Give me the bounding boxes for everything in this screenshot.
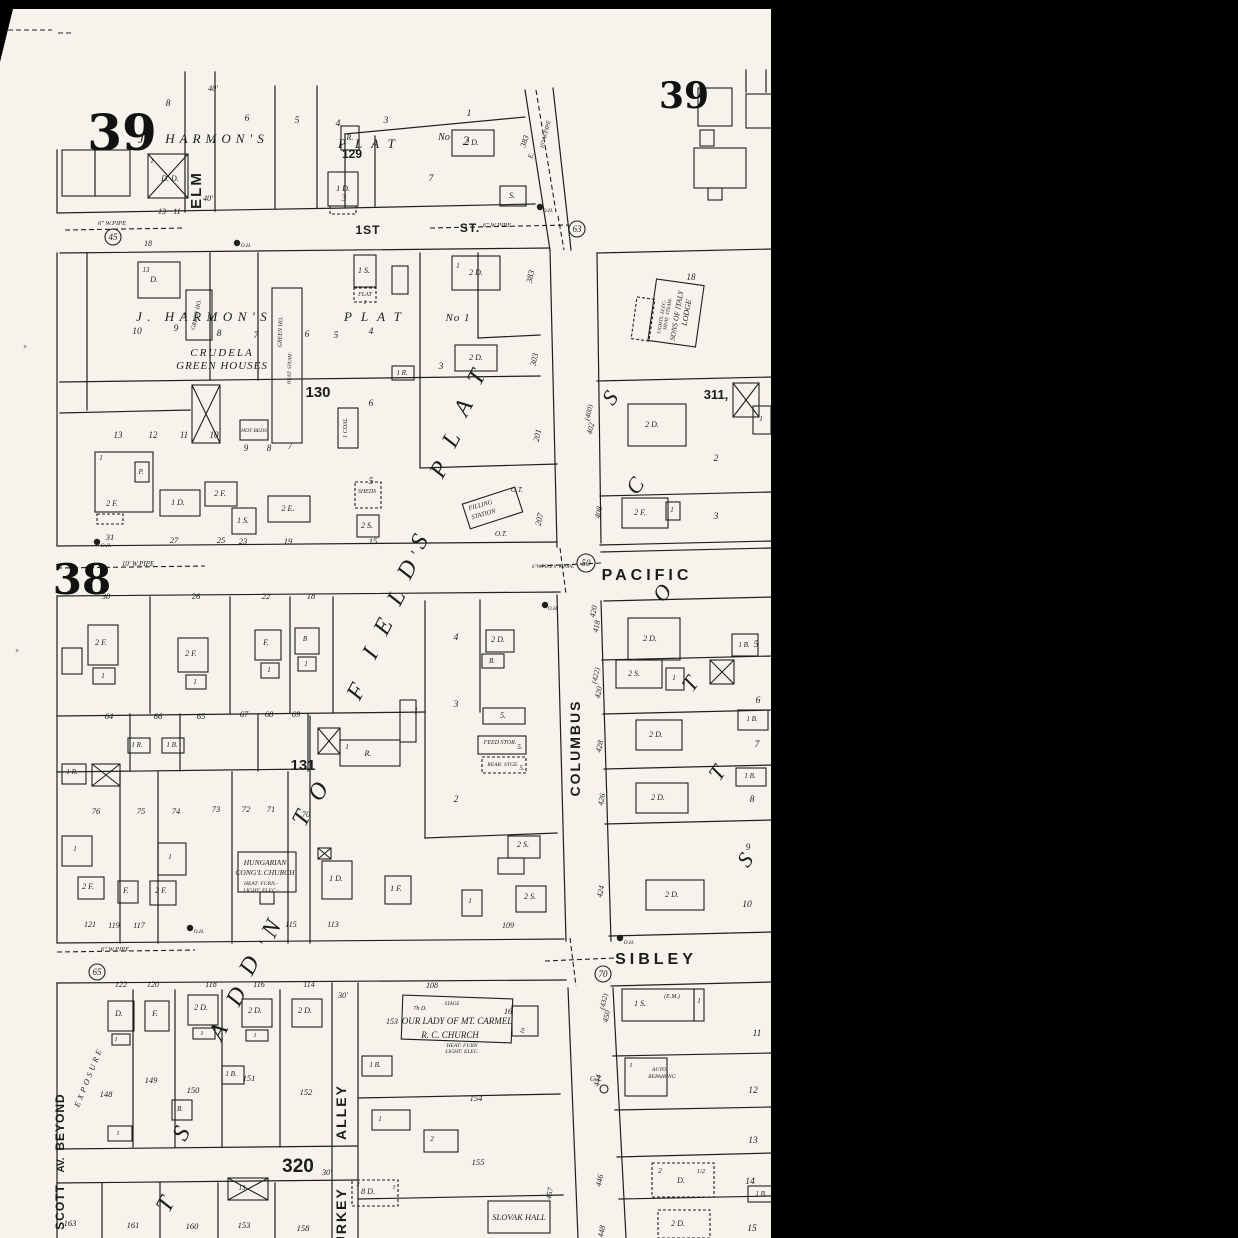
map-label: 2 D. — [645, 420, 659, 429]
map-label: LIGHT: ELEC.- — [242, 888, 279, 894]
map-label: 3 — [341, 194, 347, 204]
map-label: 1 D. — [329, 874, 343, 883]
map-label: 76 — [92, 806, 101, 816]
map-label: 2 S. — [628, 669, 640, 678]
black-strip-top — [0, 0, 1238, 9]
map-label: CRUDELA — [190, 347, 254, 359]
map-label: 2 F. — [82, 882, 94, 891]
map-label: 1 — [456, 262, 460, 270]
utility-circle-number: 65 — [93, 967, 103, 977]
map-label: 11 — [180, 430, 188, 440]
map-label: 158 — [297, 1223, 311, 1233]
map-label: 13 — [158, 207, 166, 216]
map-label: 115 — [285, 920, 296, 929]
map-label: 2 D. — [298, 1006, 312, 1015]
map-label: 1 S. — [358, 266, 370, 275]
map-label: CONG'L CHURCH — [235, 868, 295, 877]
map-label: O.H. — [624, 940, 635, 946]
map-label: 67 — [240, 709, 249, 719]
map-label: 4 — [336, 119, 341, 129]
hydrant-dot — [94, 539, 100, 545]
sanborn-map-canvas: 4563506570393839ELM1STST.PACIFICCOLUMBUS… — [0, 0, 1238, 1238]
map-label: B. — [489, 657, 495, 665]
map-label: 114 — [303, 980, 314, 989]
map-label: 1 — [99, 454, 103, 462]
map-label: 119 — [108, 921, 119, 930]
hydrant-dot — [187, 925, 193, 931]
map-label: 13 — [143, 266, 151, 274]
map-label: ST. — [460, 221, 480, 235]
map-label: No 1 — [444, 312, 470, 324]
map-label: 30 — [101, 591, 111, 601]
map-label: 2 F. — [95, 638, 107, 647]
map-label: 2 F. — [106, 499, 118, 508]
map-label: 1 B. — [738, 641, 750, 649]
map-label: 14 — [745, 1177, 755, 1187]
map-label: 1ST — [355, 223, 380, 237]
map-label: 152 — [300, 1087, 314, 1097]
map-label: D. — [114, 1009, 123, 1018]
map-label: B — [303, 635, 308, 643]
map-label: OUR LADY OF MT. CARMEL — [402, 1016, 513, 1026]
map-label: 18 — [144, 239, 152, 248]
map-label: TURKEY — [333, 1187, 349, 1238]
utility-circle-number: 50 — [582, 558, 592, 568]
map-label: 2 E. — [282, 504, 295, 513]
map-label: 5. — [500, 711, 506, 720]
map-label: 6 — [305, 330, 310, 340]
map-label: D. D. — [160, 174, 179, 183]
map-label: 5. — [519, 764, 525, 772]
map-label: 26 — [192, 591, 201, 601]
map-label: ALLEY — [333, 1084, 349, 1140]
map-label: R. C. CHURCH — [420, 1030, 479, 1040]
map-label: 1 — [392, 1184, 395, 1191]
map-label: 1 — [697, 997, 701, 1005]
map-label: O.T. — [495, 530, 507, 538]
map-label: 3 — [713, 512, 719, 522]
map-label: SIBLEY — [615, 951, 697, 968]
map-label: 1 — [168, 853, 172, 861]
map-label: No — [437, 132, 450, 143]
map-label: 5 — [369, 477, 374, 487]
map-label: 1/2 — [697, 1168, 706, 1175]
map-label: 1 — [193, 678, 197, 686]
map-label: 109 — [502, 921, 514, 930]
map-label: O.H. — [241, 243, 252, 249]
map-label: 6 — [756, 696, 761, 706]
map-label: O.H. — [548, 606, 559, 612]
map-label: 30' — [321, 1168, 332, 1177]
map-label: (E.M.) — [664, 993, 680, 1000]
map-label: O.H. — [101, 543, 112, 549]
map-label: 1 — [468, 897, 472, 905]
map-label: 163 — [64, 1218, 77, 1228]
map-label: G.T. — [590, 1075, 602, 1083]
map-label: 2 F. — [214, 489, 226, 498]
map-label: 75 — [137, 806, 146, 816]
map-label: 25 — [217, 535, 226, 545]
map-label: STAGE — [445, 1002, 460, 1007]
map-label: 65 — [197, 711, 206, 721]
map-label: 15 — [747, 1224, 757, 1234]
map-label: 7b D. — [413, 1006, 426, 1012]
map-label: 9 — [746, 843, 751, 853]
map-label: 155 — [472, 1157, 485, 1167]
map-label: 3 — [383, 116, 389, 126]
map-label: GREEN HOUSES — [176, 360, 268, 372]
map-label: F. — [122, 886, 129, 895]
map-label: 72 — [242, 804, 251, 814]
map-label: 10 — [210, 430, 220, 440]
map-label: HEAT: FURN.- — [243, 881, 278, 887]
map-label: 23 — [239, 536, 248, 546]
map-label: GREEN HO. — [277, 316, 284, 347]
map-label: 6 — [245, 114, 250, 124]
map-label: J. HARMON'S — [136, 309, 272, 324]
map-label: 9 — [174, 324, 179, 334]
map-label: 16 — [504, 1007, 512, 1016]
map-label: 73 — [212, 804, 221, 814]
map-label: × — [23, 343, 28, 351]
map-label: 10 — [132, 327, 142, 337]
map-label: 11 — [753, 1029, 762, 1039]
map-label: 18 — [307, 591, 316, 601]
map-label: COLUMBUS — [567, 700, 583, 797]
map-label: 154 — [470, 1093, 484, 1103]
map-label: 69 — [292, 709, 301, 719]
map-label: 13 — [114, 430, 124, 440]
map-label: 121 — [84, 920, 96, 929]
map-label: AV. — [56, 1157, 67, 1172]
map-label: 1 B. — [369, 1061, 381, 1069]
map-label: 2 D. — [649, 730, 663, 739]
map-label: 2 D. — [651, 793, 665, 802]
map-label: 31 — [105, 532, 115, 542]
map-label: PLAT — [343, 309, 410, 324]
map-label: D. — [676, 1176, 685, 1185]
map-label: 113 — [327, 920, 338, 929]
map-label: 1 COAL — [343, 417, 349, 438]
map-label: 2 D. — [465, 138, 479, 147]
map-label: 2 F. — [185, 649, 197, 658]
map-paper — [0, 0, 772, 1238]
map-label: 1 — [253, 1032, 256, 1039]
map-label: 1 — [101, 672, 105, 680]
map-label: 1 — [629, 1062, 632, 1069]
map-label: 1 — [73, 845, 77, 853]
map-label: R. — [364, 749, 372, 758]
map-label: 116 — [253, 980, 264, 989]
map-label: 6 — [369, 399, 374, 409]
map-label: 129 — [342, 147, 362, 161]
map-label: 1 R. — [396, 369, 408, 377]
hydrant-dot — [234, 240, 240, 246]
map-label: 1 D. — [336, 184, 350, 193]
map-label: 153 — [386, 1017, 398, 1026]
map-label: 15 — [369, 536, 378, 546]
map-label: 118 — [205, 980, 216, 989]
map-label: 2 D. — [491, 635, 505, 644]
map-label: 13 — [239, 1184, 247, 1192]
map-label: 7 — [288, 441, 293, 451]
map-label: 2 D. — [643, 634, 657, 643]
map-label: 1 — [378, 1115, 382, 1123]
map-label: 1a — [520, 1027, 527, 1034]
map-label: 131 — [290, 757, 315, 774]
map-label: 2 D. — [248, 1006, 262, 1015]
map-label: 2 F. — [155, 886, 167, 895]
map-label: 1 B. — [755, 1190, 767, 1198]
map-label: BEYOND — [53, 1093, 67, 1150]
map-label: 22 — [262, 591, 271, 601]
map-label: 8 D. — [361, 1187, 375, 1196]
map-label: PACIFIC — [602, 567, 693, 584]
map-label: 2 D. — [194, 1003, 208, 1012]
map-label: 5 — [295, 116, 300, 126]
map-label: 1 — [200, 1030, 203, 1037]
utility-circle-number: 45 — [109, 232, 119, 242]
map-label: P. — [137, 468, 143, 476]
map-label: 40' — [203, 194, 213, 203]
map-label: 1 R. — [131, 741, 143, 749]
map-label: 30' — [337, 991, 348, 1000]
map-label: 122 — [115, 980, 127, 989]
map-label: 1 B. — [225, 1070, 237, 1078]
map-label: 6" W.PIPE — [98, 220, 126, 227]
map-label: 6" W.PIPE — [483, 222, 511, 229]
map-label: J. HARMON'S — [138, 131, 269, 146]
map-label: REAR: STGE. — [486, 762, 518, 768]
map-label: 1 — [414, 706, 419, 716]
map-label: 153 — [238, 1220, 251, 1230]
map-label: 161 — [127, 1220, 140, 1230]
map-label: 2 — [714, 454, 719, 464]
map-label: 3 — [438, 362, 444, 372]
map-label: 64 — [105, 711, 114, 721]
map-label: ELM — [188, 171, 205, 209]
map-label: 10 — [742, 900, 752, 910]
map-label: 1 — [267, 666, 271, 674]
map-label: 149 — [145, 1075, 159, 1085]
map-label: 5 — [334, 331, 339, 341]
map-label: 2 — [430, 1135, 434, 1143]
map-label: 6"W.PIPE 9"W.PIPE — [532, 565, 574, 570]
map-label: 11 — [173, 207, 180, 216]
map-label: SLOVAK HALL — [492, 1212, 546, 1222]
map-label: 1 — [114, 1036, 117, 1043]
map-label: 1 — [364, 300, 367, 306]
map-label: 8 — [166, 99, 171, 109]
map-label: 18 — [687, 272, 697, 282]
map-label: SHEDS — [358, 489, 376, 495]
map-label: 1 R. — [66, 768, 78, 776]
map-label: FEED STOR. — [483, 740, 517, 746]
map-label: R. — [346, 133, 354, 142]
map-label: F. — [151, 1009, 158, 1018]
map-label: 1 D. — [171, 498, 185, 507]
map-label: 151 — [243, 1073, 256, 1083]
map-label: F. — [262, 638, 269, 647]
map-label: 160 — [186, 1221, 200, 1231]
map-label: 130 — [305, 384, 330, 401]
map-label: O.H. — [543, 208, 554, 214]
map-label: AUTO — [651, 1067, 666, 1073]
map-label: 12 — [748, 1086, 758, 1096]
map-label: 40' — [208, 84, 218, 93]
map-label: 1 — [150, 157, 154, 165]
map-label: HUNGARIAN — [243, 858, 287, 867]
map-label: B. — [177, 1105, 183, 1113]
map-label: 4 — [369, 327, 374, 337]
map-label: 3 — [453, 700, 459, 710]
map-label: LIGHT: ELEC. — [444, 1049, 479, 1055]
black-panel-right — [771, 0, 1238, 1238]
map-label: 6" W.PIPE — [101, 946, 129, 953]
map-label: 148 — [100, 1089, 114, 1099]
map-label: 2 S. — [517, 840, 529, 849]
map-label: 120 — [147, 980, 159, 989]
map-label: 1 S. — [237, 516, 249, 525]
map-label: 320 — [282, 1156, 314, 1177]
map-label: 4 — [454, 633, 459, 643]
map-label: 5. — [517, 743, 523, 751]
map-label: 1 — [670, 506, 674, 514]
map-label: 108 — [426, 981, 438, 990]
map-label: 2 S. — [524, 892, 536, 901]
map-label: FLAT — [357, 292, 372, 298]
map-label: 10' W.PIPE — [122, 560, 155, 568]
map-label: 2 D. — [469, 268, 483, 277]
map-label: S. — [509, 191, 515, 200]
map-label: 1 B. — [166, 741, 178, 749]
map-label: 150 — [187, 1085, 201, 1095]
map-label: 2 — [454, 795, 459, 805]
map-label: 70 — [302, 809, 311, 819]
map-label: 12 — [149, 430, 159, 440]
map-label: 8 — [267, 443, 272, 453]
map-label: 2 F. — [634, 508, 646, 517]
map-label: 1 — [672, 674, 676, 682]
map-label: 1 B. — [744, 772, 756, 780]
map-label: 1 — [345, 743, 349, 751]
map-label: O.H. — [194, 929, 205, 935]
map-label: 311, — [704, 387, 729, 402]
map-label: 1 — [467, 109, 472, 119]
map-label: 5 — [754, 640, 759, 650]
map-label: 1 F. — [390, 884, 402, 893]
map-label: 1 B. — [746, 715, 758, 723]
hydrant-dot — [617, 935, 623, 941]
map-label: 66 — [154, 711, 163, 721]
map-label: 1 — [304, 660, 308, 668]
map-label: 1 — [116, 1130, 119, 1137]
map-label: 8 — [750, 795, 755, 805]
map-label: 8 — [217, 329, 222, 339]
map-label: 74 — [172, 806, 181, 816]
map-label: 71 — [267, 804, 276, 814]
map-label: 2 D. — [469, 353, 483, 362]
map-label: 9 — [244, 443, 249, 453]
map-label: 19 — [284, 536, 293, 546]
map-label: 2 D. — [665, 890, 679, 899]
map-label: HOT BEDS — [240, 428, 267, 434]
map-label: O.T. — [511, 486, 523, 494]
map-label: 117 — [133, 921, 145, 930]
map-label: D. — [149, 275, 158, 284]
map-label: 2 S. — [361, 521, 373, 530]
map-label: 27 — [170, 535, 179, 545]
map-label: 39 — [659, 75, 709, 117]
map-label: 68 — [265, 709, 274, 719]
map-label: 2 — [658, 1167, 662, 1175]
map-label: 2 D. — [671, 1219, 685, 1228]
utility-circle-number: 63 — [573, 224, 583, 234]
map-label: 13 — [748, 1136, 758, 1146]
map-label: 1 — [759, 415, 763, 423]
map-label: 1 S. — [634, 999, 646, 1008]
map-label: × — [15, 647, 20, 655]
map-viewer-screen: 4563506570393839ELM1STST.PACIFICCOLUMBUS… — [0, 0, 1238, 1238]
map-label: REPAIRING — [647, 1074, 675, 1080]
utility-circle-number: 70 — [599, 969, 609, 979]
